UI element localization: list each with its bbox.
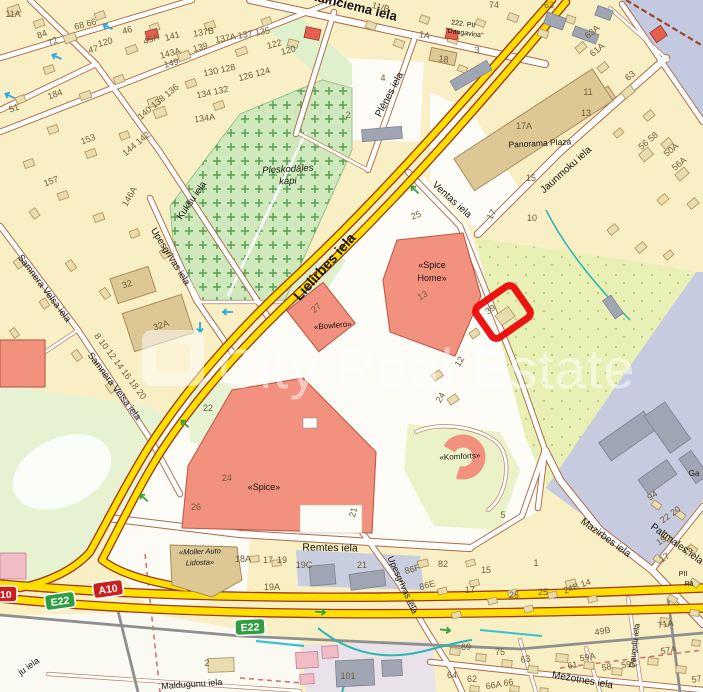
building-footprint [584, 662, 595, 670]
house-number-64: 64 [447, 670, 457, 680]
house-number-1: 1 [533, 558, 538, 568]
place-label-pii: PII [679, 571, 688, 578]
route-shield-e22-2: E22 [44, 591, 76, 611]
house-number-2: 2 [204, 658, 209, 668]
house-number-74: 74 [489, 0, 499, 10]
map-canvas[interactable]: City Real Estate 11A847268 664645A471201… [0, 0, 703, 692]
industrial-building-footprint [309, 564, 336, 586]
house-number-4: 4 [380, 73, 385, 83]
place-label-lidosta: Lidosta» [186, 558, 215, 568]
building-footprint [692, 640, 700, 647]
house-number-17a: 17A [516, 121, 532, 131]
west-edge-building [0, 340, 45, 387]
route-shield-e22-3: E22 [235, 618, 266, 636]
misc-building-footprint [0, 553, 26, 579]
industrial-building-footprint [382, 659, 403, 676]
building-footprint [528, 666, 539, 674]
house-number-2: 2 [345, 110, 350, 120]
house-number-75: 75 [495, 647, 505, 657]
misc-building-footprint [322, 646, 339, 659]
house-number-11a: 11A [5, 9, 20, 19]
place-label-r: Rā [685, 581, 694, 588]
misc-building-footprint [296, 651, 319, 668]
house-number-18a: 18A [235, 554, 251, 564]
building-footprint [208, 658, 234, 673]
house-number-22: 22 [203, 403, 213, 413]
watermark-text: City Real Estate [218, 337, 636, 400]
building-footprint [476, 654, 487, 662]
house-number-15: 15 [526, 173, 536, 183]
building-footprint [648, 658, 659, 666]
house-number-11: 11 [583, 87, 592, 97]
house-number-15: 15 [481, 565, 491, 575]
house-number-25: 25 [509, 590, 519, 600]
house-number-26: 26 [191, 502, 201, 512]
building-footprint [690, 610, 699, 617]
building-footprint [612, 668, 623, 676]
route-shield-a10-1: A10 [0, 586, 17, 602]
house-number-63: 63 [520, 653, 532, 665]
house-number-58: 58 [601, 661, 613, 673]
route-shield-label: E22 [240, 621, 259, 634]
building-footprint [250, 556, 259, 563]
place-label-spice: «Spice [418, 260, 446, 270]
house-number-61: 61 [567, 659, 579, 671]
place-label-home: Home» [417, 273, 446, 283]
house-number-62: 62 [467, 674, 477, 684]
house-number-1a: 1A [418, 29, 431, 41]
house-number-19: 19 [277, 555, 287, 565]
house-number-3: 3 [474, 45, 479, 55]
house-number-18: 18 [438, 53, 450, 65]
route-shield-a10-0: A10 [92, 579, 124, 599]
house-number-10: 10 [527, 213, 537, 223]
house-number-19c: 19C [296, 560, 313, 570]
house-number-25: 25 [538, 587, 548, 597]
building-footprint [540, 688, 548, 692]
house-number-101: 101 [340, 671, 355, 681]
house-number-17: 17 [263, 555, 273, 565]
riga-map-svg[interactable]: City Real Estate 11A847268 664645A471201… [0, 0, 703, 692]
house-number-57: 57 [691, 673, 703, 685]
house-number-13: 13 [581, 108, 591, 118]
house-number-69: 69 [461, 642, 471, 652]
house-number-19a: 19A [264, 582, 280, 592]
building-footprint [676, 666, 687, 674]
building-footprint [502, 660, 513, 668]
building-footprint [450, 648, 461, 656]
house-number-5: 5 [500, 510, 505, 520]
house-number-63: 63 [544, 0, 554, 10]
house-number-21: 21 [357, 560, 367, 570]
misc-building-footprint [300, 674, 315, 685]
building-footprint [470, 686, 479, 692]
place-label-spice: «Spice» [248, 482, 281, 492]
place-label-ga: Ga [689, 469, 700, 478]
street-label-remtes-iela: Remtes iela [302, 542, 358, 555]
place-label-moller-auto: «Moller Auto [179, 546, 221, 556]
house-number-17: 17 [465, 585, 475, 595]
house-number-82: 82 [438, 559, 448, 569]
place-label-kapi: kapi [279, 176, 298, 188]
route-shield-label: A10 [0, 589, 12, 601]
house-number-24: 24 [222, 473, 232, 483]
